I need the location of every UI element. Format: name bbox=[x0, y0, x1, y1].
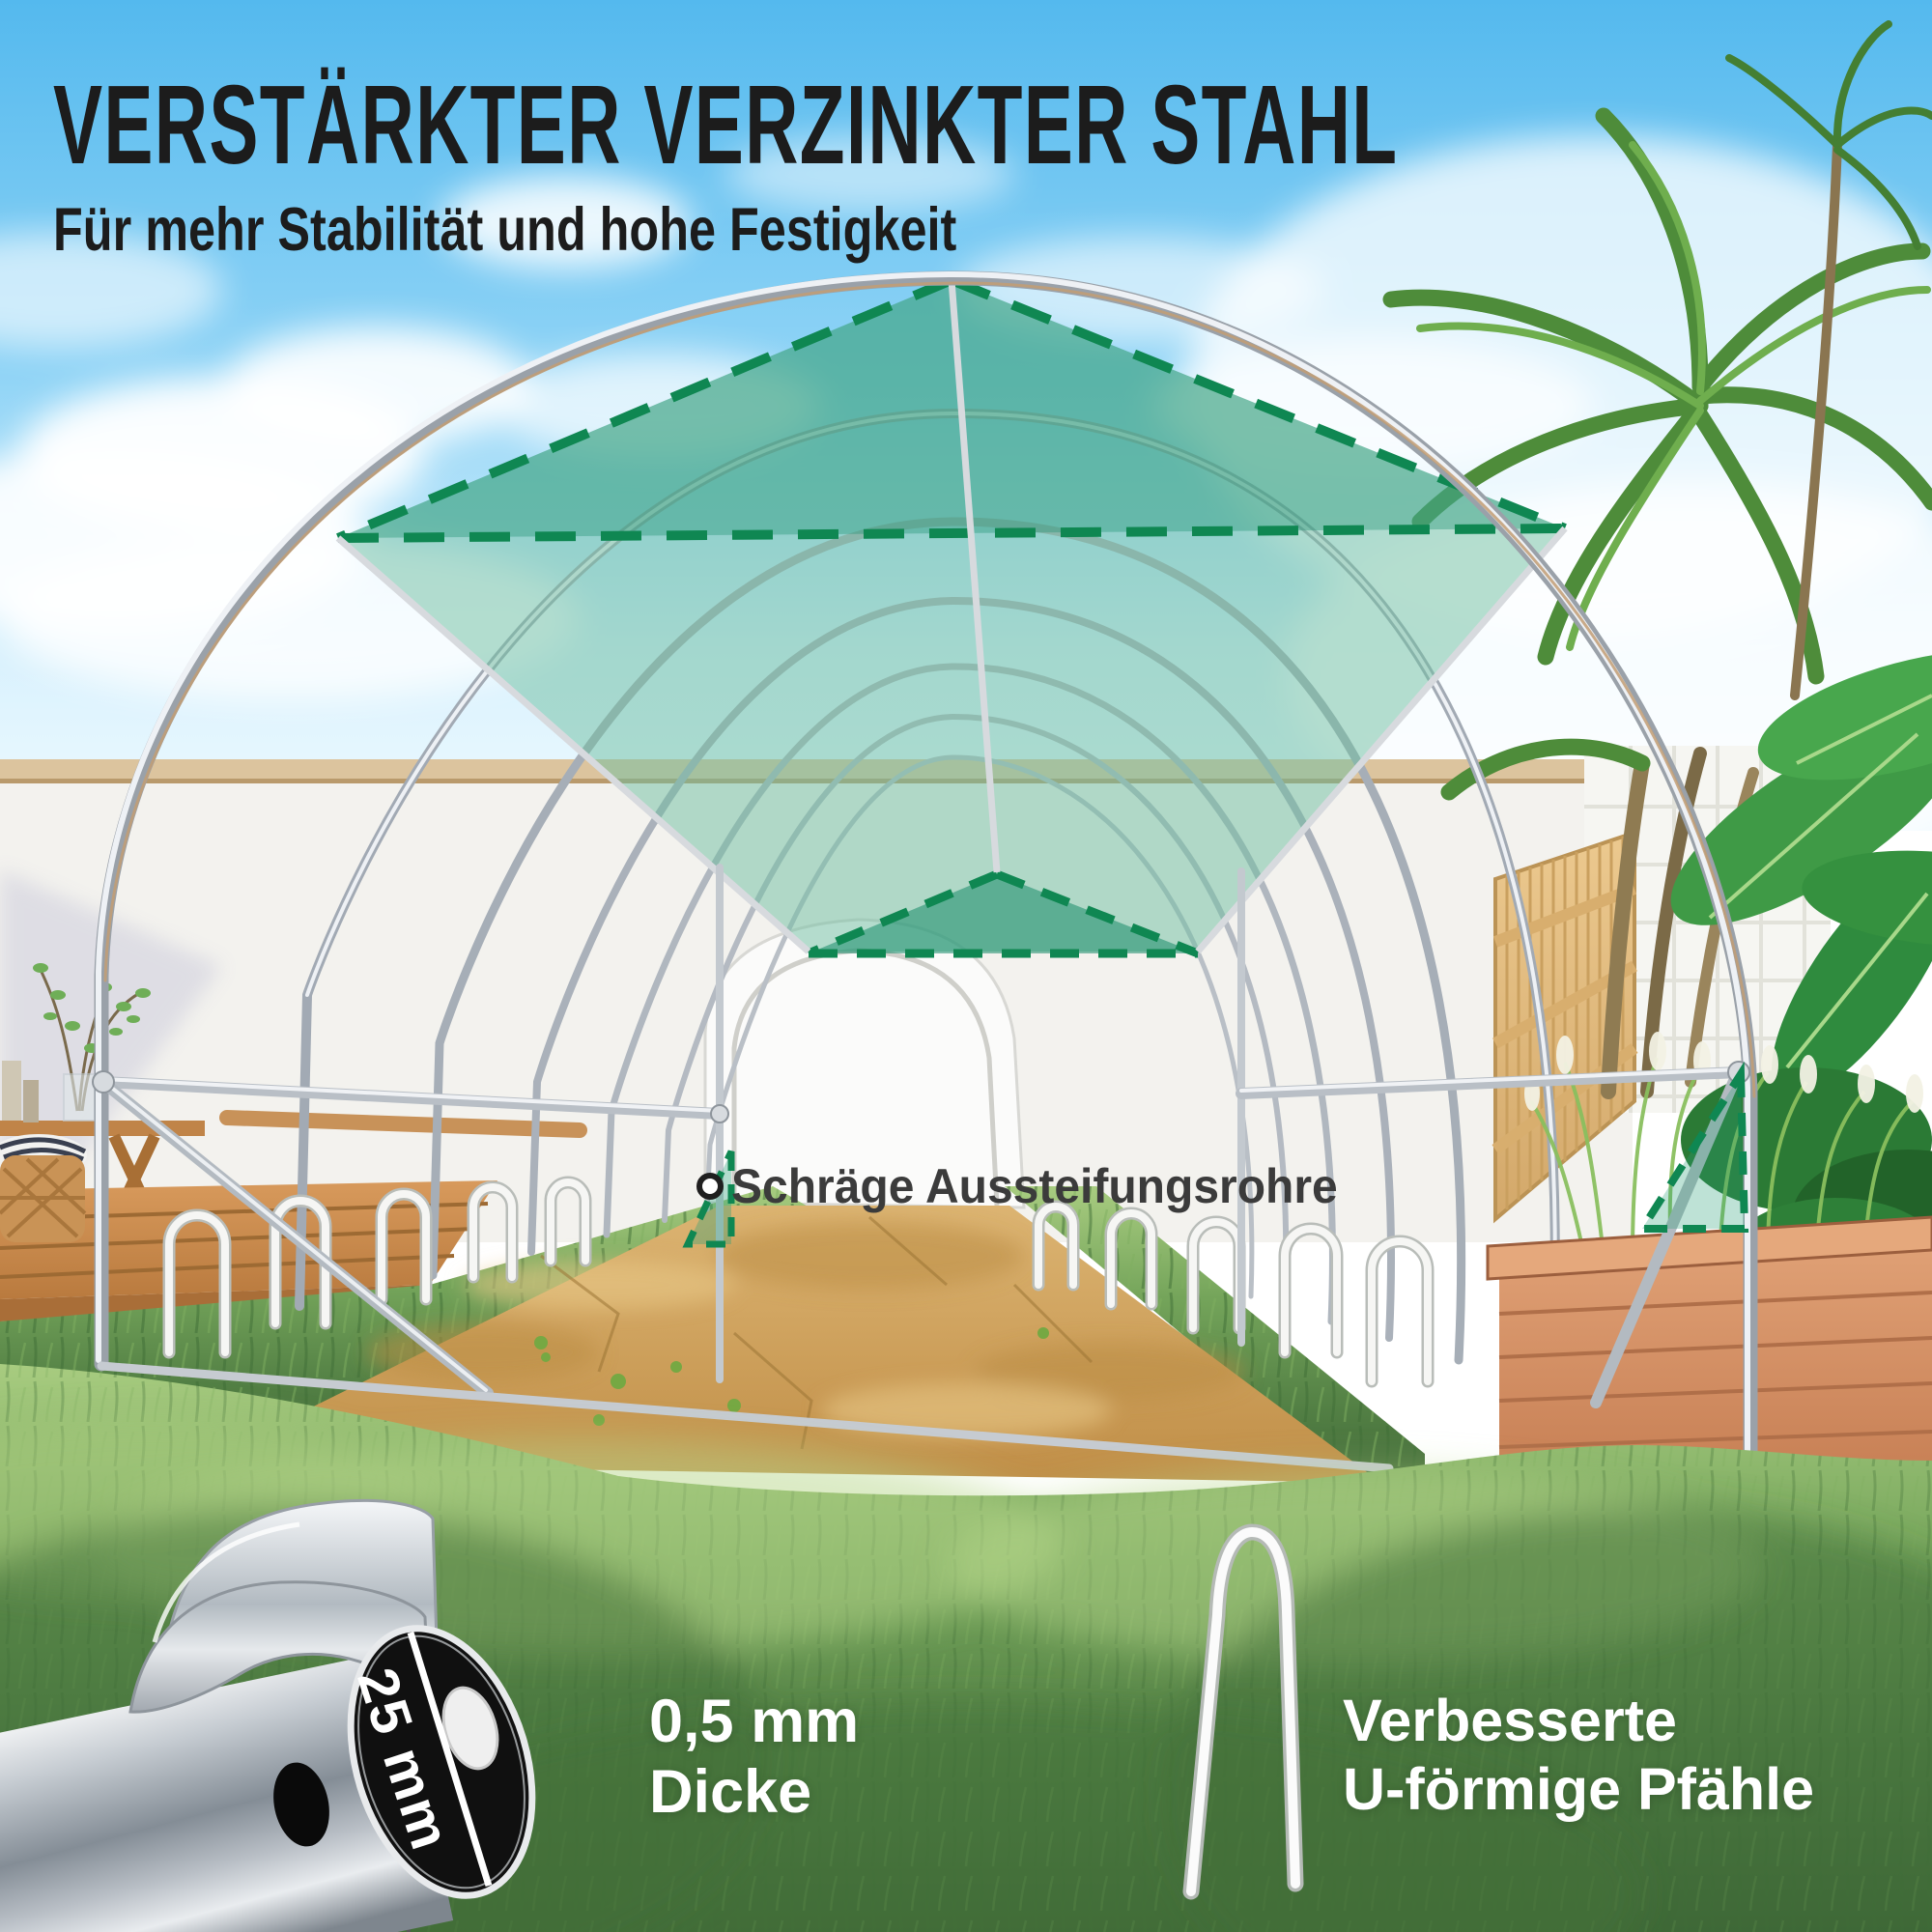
diagonal-braces-label: Schräge Aussteifungsrohre bbox=[731, 1158, 1338, 1214]
thickness-callout: 0,5 mm Dicke bbox=[649, 1687, 859, 1828]
page-title: VERSTÄRKTER VERZINKTER STAHL bbox=[53, 60, 1398, 189]
thickness-value: 0,5 mm bbox=[649, 1687, 859, 1757]
glass-vase bbox=[64, 1074, 95, 1121]
stake-callout-line2: U-förmige Pfähle bbox=[1343, 1755, 1814, 1824]
stake-callout-line1: Verbesserte bbox=[1343, 1687, 1814, 1755]
ground-stake bbox=[1372, 1241, 1428, 1381]
garden-scene: 25 mm bbox=[0, 0, 1932, 1932]
wicker-basket bbox=[0, 1134, 87, 1242]
frame-joint bbox=[93, 1071, 114, 1093]
page-subtitle: Für mehr Stabilität und hohe Festigkeit bbox=[53, 195, 956, 265]
bullet-marker-icon bbox=[699, 1176, 721, 1197]
product-infographic: 25 mm VERSTÄRKTER VERZINKTER STAHL Für m… bbox=[0, 0, 1932, 1932]
stake-callout: Verbesserte U-förmige Pfähle bbox=[1343, 1687, 1814, 1824]
frame-joint bbox=[711, 1105, 728, 1122]
thickness-label: Dicke bbox=[649, 1757, 859, 1828]
